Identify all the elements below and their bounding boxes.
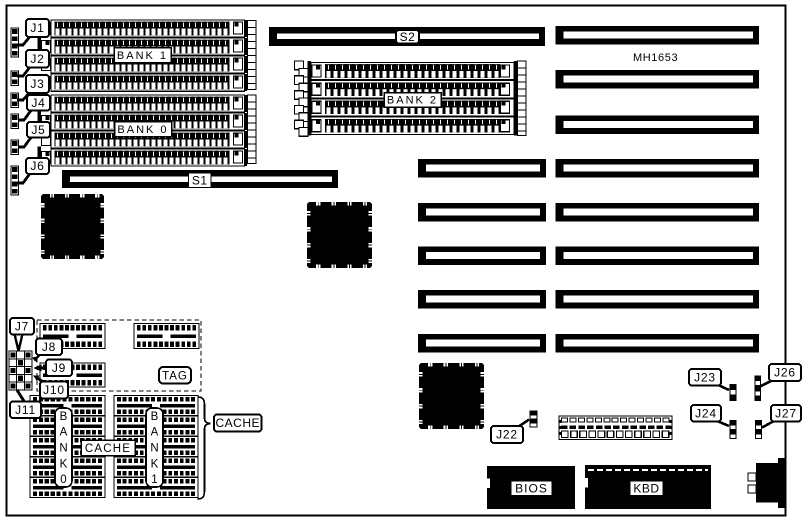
svg-text:J5: J5 (31, 123, 45, 137)
svg-text:J27: J27 (775, 406, 797, 420)
svg-text:J8: J8 (42, 340, 56, 354)
svg-text:K: K (151, 458, 159, 470)
svg-text:J4: J4 (31, 96, 45, 110)
svg-text:BIOS: BIOS (515, 481, 548, 495)
svg-text:A: A (60, 427, 68, 439)
svg-text:CACHE: CACHE (85, 443, 131, 455)
svg-text:BANK 0: BANK 0 (117, 124, 168, 136)
svg-text:BANK 2: BANK 2 (387, 95, 438, 107)
svg-text:J11: J11 (15, 403, 36, 417)
svg-text:N: N (150, 443, 158, 455)
svg-text:J23: J23 (694, 370, 716, 384)
svg-text:0: 0 (60, 474, 66, 486)
svg-text:S2: S2 (400, 30, 416, 44)
svg-text:B: B (151, 411, 159, 423)
svg-text:KBD: KBD (633, 481, 659, 495)
svg-text:K: K (60, 458, 68, 470)
svg-text:BANK 1: BANK 1 (117, 50, 168, 62)
svg-text:J26: J26 (774, 366, 796, 380)
svg-text:B: B (60, 411, 68, 423)
svg-text:N: N (59, 443, 67, 455)
svg-text:TAG: TAG (162, 370, 188, 382)
svg-text:A: A (151, 427, 159, 439)
svg-text:J6: J6 (30, 159, 44, 173)
svg-text:CACHE: CACHE (215, 416, 260, 430)
svg-text:J2: J2 (30, 52, 44, 66)
svg-text:J1: J1 (30, 21, 44, 35)
svg-text:J10: J10 (43, 383, 65, 397)
svg-text:S1: S1 (192, 173, 208, 187)
svg-text:J22: J22 (496, 428, 518, 442)
svg-text:J7: J7 (15, 319, 29, 333)
svg-text:J3: J3 (30, 77, 44, 91)
svg-text:J24: J24 (695, 406, 717, 420)
svg-text:J9: J9 (52, 361, 66, 375)
svg-text:1: 1 (151, 474, 157, 486)
svg-text:MH1653: MH1653 (633, 52, 678, 64)
